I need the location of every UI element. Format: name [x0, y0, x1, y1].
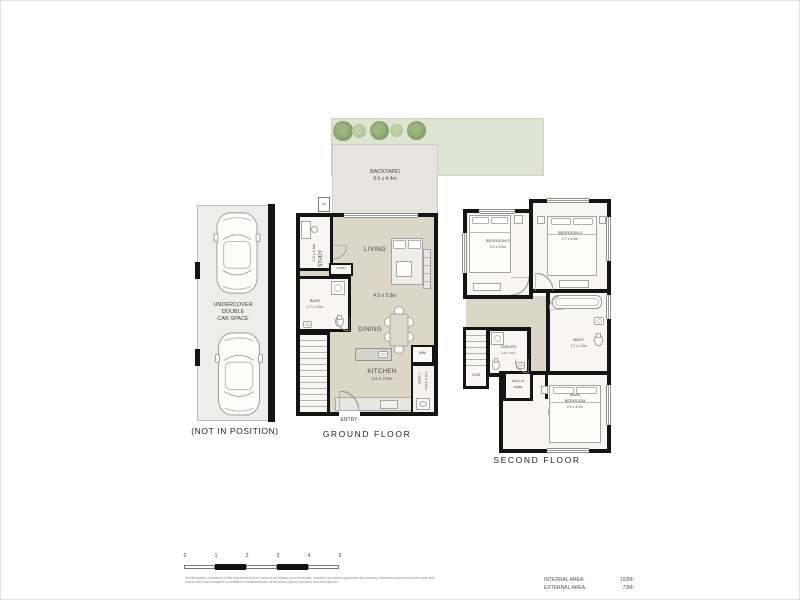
door-arc-icon	[339, 391, 359, 411]
sink-icon	[303, 321, 312, 328]
floorplan-page: UNDERCOVER DOUBLE CAR SPACE (NOT IN POSI…	[0, 0, 800, 600]
kitchen-island-icon	[355, 348, 392, 361]
pillow	[491, 217, 508, 224]
shower-icon	[491, 332, 504, 345]
ensuite-dims: 1.8 x 2.0m	[497, 352, 519, 355]
room-laundry: L'DRY 0.8 x 2.5m	[411, 364, 434, 412]
car-icon	[213, 211, 261, 295]
window	[606, 295, 611, 319]
tv-unit-icon	[423, 249, 431, 289]
car-space-caption: (NOT IN POSITION)	[167, 427, 303, 437]
scale-segment-white	[308, 565, 339, 569]
study-label: STUDY	[318, 223, 324, 267]
ground-floor-plan: STUDY 2.0 x 1.9m CUP'D BATH 1.7 x 2.0m L…	[296, 213, 438, 416]
pillow	[573, 218, 593, 225]
window	[606, 385, 611, 425]
bath-2f-label: BATH	[556, 339, 602, 344]
wir-label2: ROBE	[511, 386, 525, 389]
scale-tick: 5	[336, 554, 344, 560]
bedroom3-dims: 2.7 x 4.0m	[544, 238, 596, 242]
kitchen-dims: 2.6 x 2.6m	[355, 377, 409, 382]
car-space-right-wall	[268, 204, 275, 422]
kitchen-sink-icon	[378, 351, 388, 358]
window	[606, 217, 611, 261]
car-space-label-line3: CAR SPACE	[199, 316, 267, 322]
bath-gf-label: BATH	[303, 300, 327, 305]
tree-icon	[370, 121, 389, 140]
bedroom3-label: BEDROOM 3	[540, 232, 599, 237]
door-arc-icon	[515, 359, 529, 373]
second-floor-caption: SECOND FLOOR	[467, 456, 607, 466]
bed-icon	[547, 216, 597, 276]
tree-icon	[390, 124, 403, 137]
car-icon	[214, 331, 264, 417]
scale-tick: 4	[305, 554, 313, 560]
internal-area-value: 102M²	[620, 577, 634, 583]
laundry-label: L'DRY	[417, 373, 422, 395]
bath-gf-dims: 1.7 x 2.0m	[305, 306, 326, 310]
bedroom2-dims: 3.0 x 3.0m	[476, 246, 519, 250]
room-walk-in-robe: WALK-IN ROBE	[503, 371, 533, 401]
entry-label: ENTRY	[327, 418, 371, 424]
car-space-label-line2: DOUBLE	[199, 309, 267, 315]
stairs-2f	[466, 330, 486, 366]
door-arc-icon	[549, 295, 564, 310]
desk-icon	[301, 221, 311, 239]
scale-tick: 2	[243, 554, 251, 560]
kitchen-label: KITCHEN	[352, 369, 412, 376]
backyard-label: BACKYARD	[332, 169, 438, 175]
door-arc-icon	[535, 273, 553, 291]
wm-label: WM	[415, 352, 430, 357]
dresser-icon	[473, 283, 501, 291]
room-wm: WM	[411, 345, 434, 364]
toilet-icon	[492, 360, 500, 370]
dresser-icon	[559, 280, 589, 288]
ground-floor-caption: GROUND FLOOR	[297, 430, 437, 440]
blanket-line	[470, 232, 510, 233]
scale-segment-white	[246, 565, 277, 569]
car-space-label-line1: UNDERCOVER	[199, 302, 267, 308]
main-bedroom-dims: 2.9 x 4.2m	[555, 406, 594, 410]
internal-area-label: INTERNAL AREA:	[544, 577, 585, 583]
coffee-table-icon	[396, 261, 412, 277]
void-label: VOID	[469, 374, 483, 378]
living-dims: 4.0 x 5.8m	[353, 294, 417, 300]
scale-segment-black	[277, 564, 308, 570]
door-arc-icon	[333, 245, 347, 259]
external-area-value: 73M²	[623, 585, 634, 591]
external-area-label: EXTERNAL AREA:	[544, 585, 586, 591]
ensuite-label: ENSUITE	[496, 346, 522, 350]
second-floor-plan: BEDROOM 2 3.0 x 3.0m BEDROOM 3 2.7 x 4.0…	[463, 199, 611, 453]
bath-2f-dims: 1.7 x 2.5m	[559, 345, 599, 349]
scale-segment-black	[215, 564, 246, 570]
nightstand-icon	[537, 216, 545, 224]
sink-icon	[594, 317, 604, 325]
ac-unit: AC	[318, 197, 330, 212]
window	[479, 209, 515, 214]
bedroom2-label: BEDROOM 2	[473, 240, 523, 245]
window	[462, 233, 467, 273]
laundry-dims: 0.8 x 2.5m	[424, 372, 429, 397]
backyard-dims: 9.6 x 4.4m	[332, 177, 438, 183]
main-bedroom-label2: BEDROOM	[553, 400, 598, 405]
washing-machine-icon	[416, 398, 430, 410]
stairs-gf	[300, 332, 330, 412]
scale-tick: 1	[212, 554, 220, 560]
pillow	[551, 218, 571, 225]
car-space-post-bottom	[195, 349, 200, 366]
cupboard-label: CUP'D	[335, 267, 347, 270]
tree-icon	[333, 121, 353, 141]
study-dims: 2.0 x 1.9m	[312, 229, 317, 262]
scale-tick: 0	[181, 554, 189, 560]
door-arc-icon	[336, 317, 350, 331]
sofa-cushion	[408, 240, 421, 249]
nightstand-icon	[514, 215, 523, 224]
backyard-door	[344, 213, 418, 218]
cooktop-icon	[380, 400, 398, 409]
nightstand-icon	[599, 216, 606, 224]
tree-icon	[407, 121, 426, 140]
tree-icon	[352, 124, 366, 138]
main-bedroom-label1: MAIN	[553, 394, 598, 399]
car-space-post-top	[195, 262, 200, 279]
door-arc-icon	[511, 277, 529, 295]
scale-segment-white	[184, 565, 215, 569]
window	[547, 198, 589, 203]
living-label: LIVING	[353, 247, 397, 254]
window	[547, 448, 589, 453]
ac-label: AC	[321, 203, 327, 206]
room-cupboard: CUP'D	[329, 263, 353, 276]
scale-tick: 3	[274, 554, 282, 560]
disclaimer-text: All information contained in this docume…	[185, 577, 435, 585]
shower-icon	[331, 281, 345, 295]
pillow	[472, 217, 489, 224]
wir-label1: WALK-IN	[511, 380, 525, 383]
nightstand-icon	[541, 386, 548, 394]
area-summary: INTERNAL AREA: 102M² EXTERNAL AREA: 73M²	[544, 577, 634, 591]
scale-bar: 0 1 2 3 4 5	[184, 554, 346, 576]
